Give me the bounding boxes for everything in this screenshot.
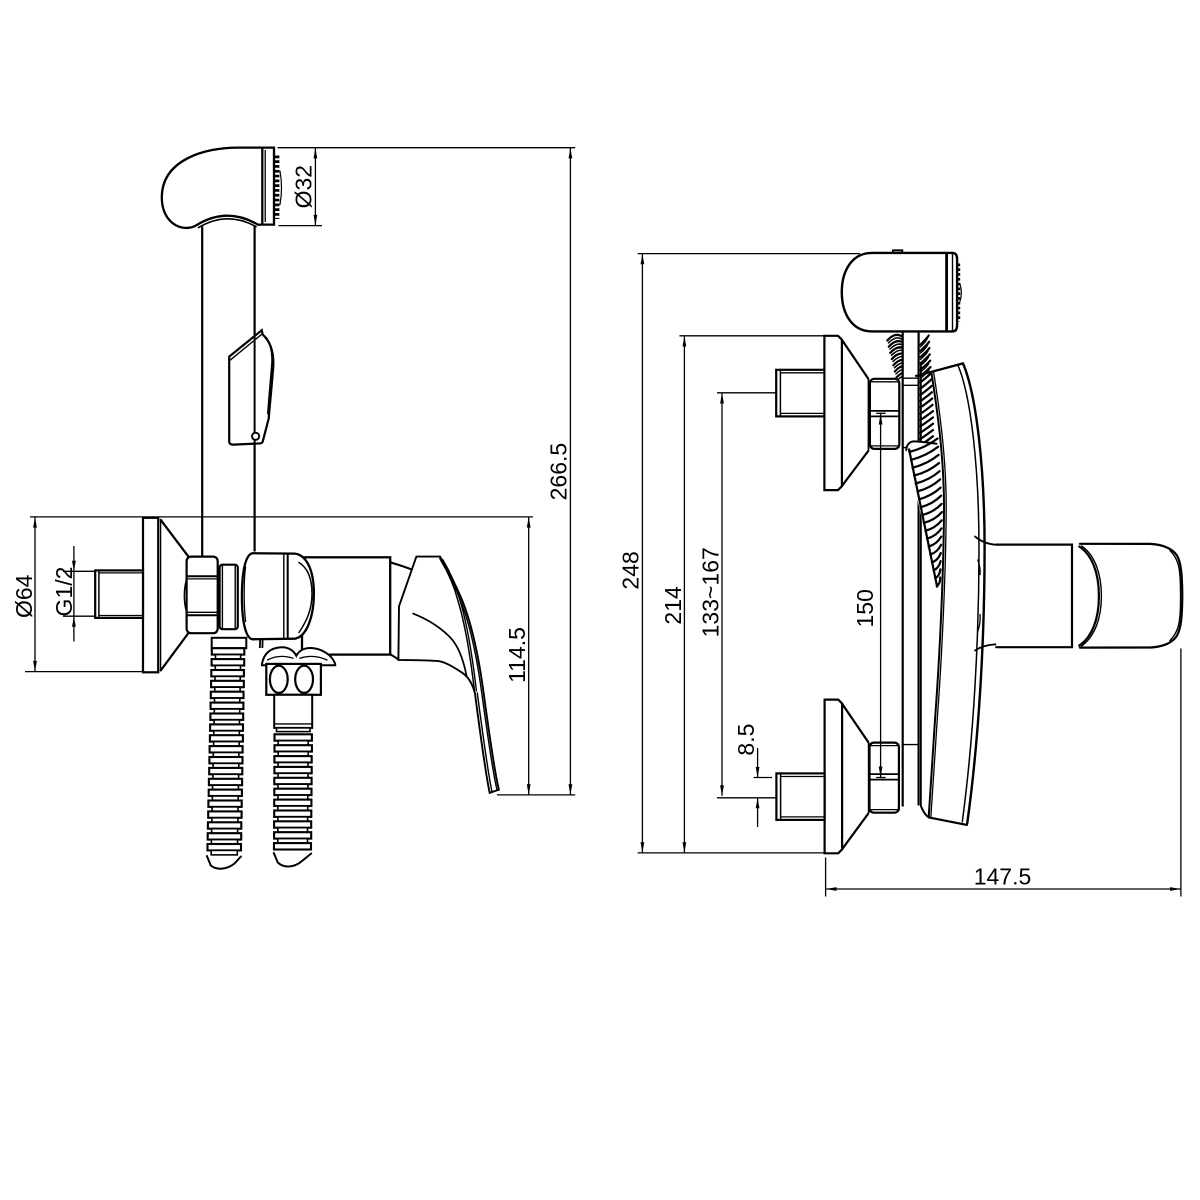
svg-text:Ø64: Ø64 <box>11 574 37 618</box>
svg-text:147.5: 147.5 <box>974 864 1032 890</box>
svg-text:248: 248 <box>618 551 644 589</box>
svg-text:G1/2: G1/2 <box>51 567 77 617</box>
svg-text:8.5: 8.5 <box>733 724 759 756</box>
svg-text:214: 214 <box>660 586 686 625</box>
svg-text:266.5: 266.5 <box>546 443 572 501</box>
svg-text:114.5: 114.5 <box>504 627 530 683</box>
svg-text:133~167: 133~167 <box>698 547 724 637</box>
svg-text:Ø32: Ø32 <box>291 165 317 208</box>
svg-text:150: 150 <box>852 589 878 627</box>
